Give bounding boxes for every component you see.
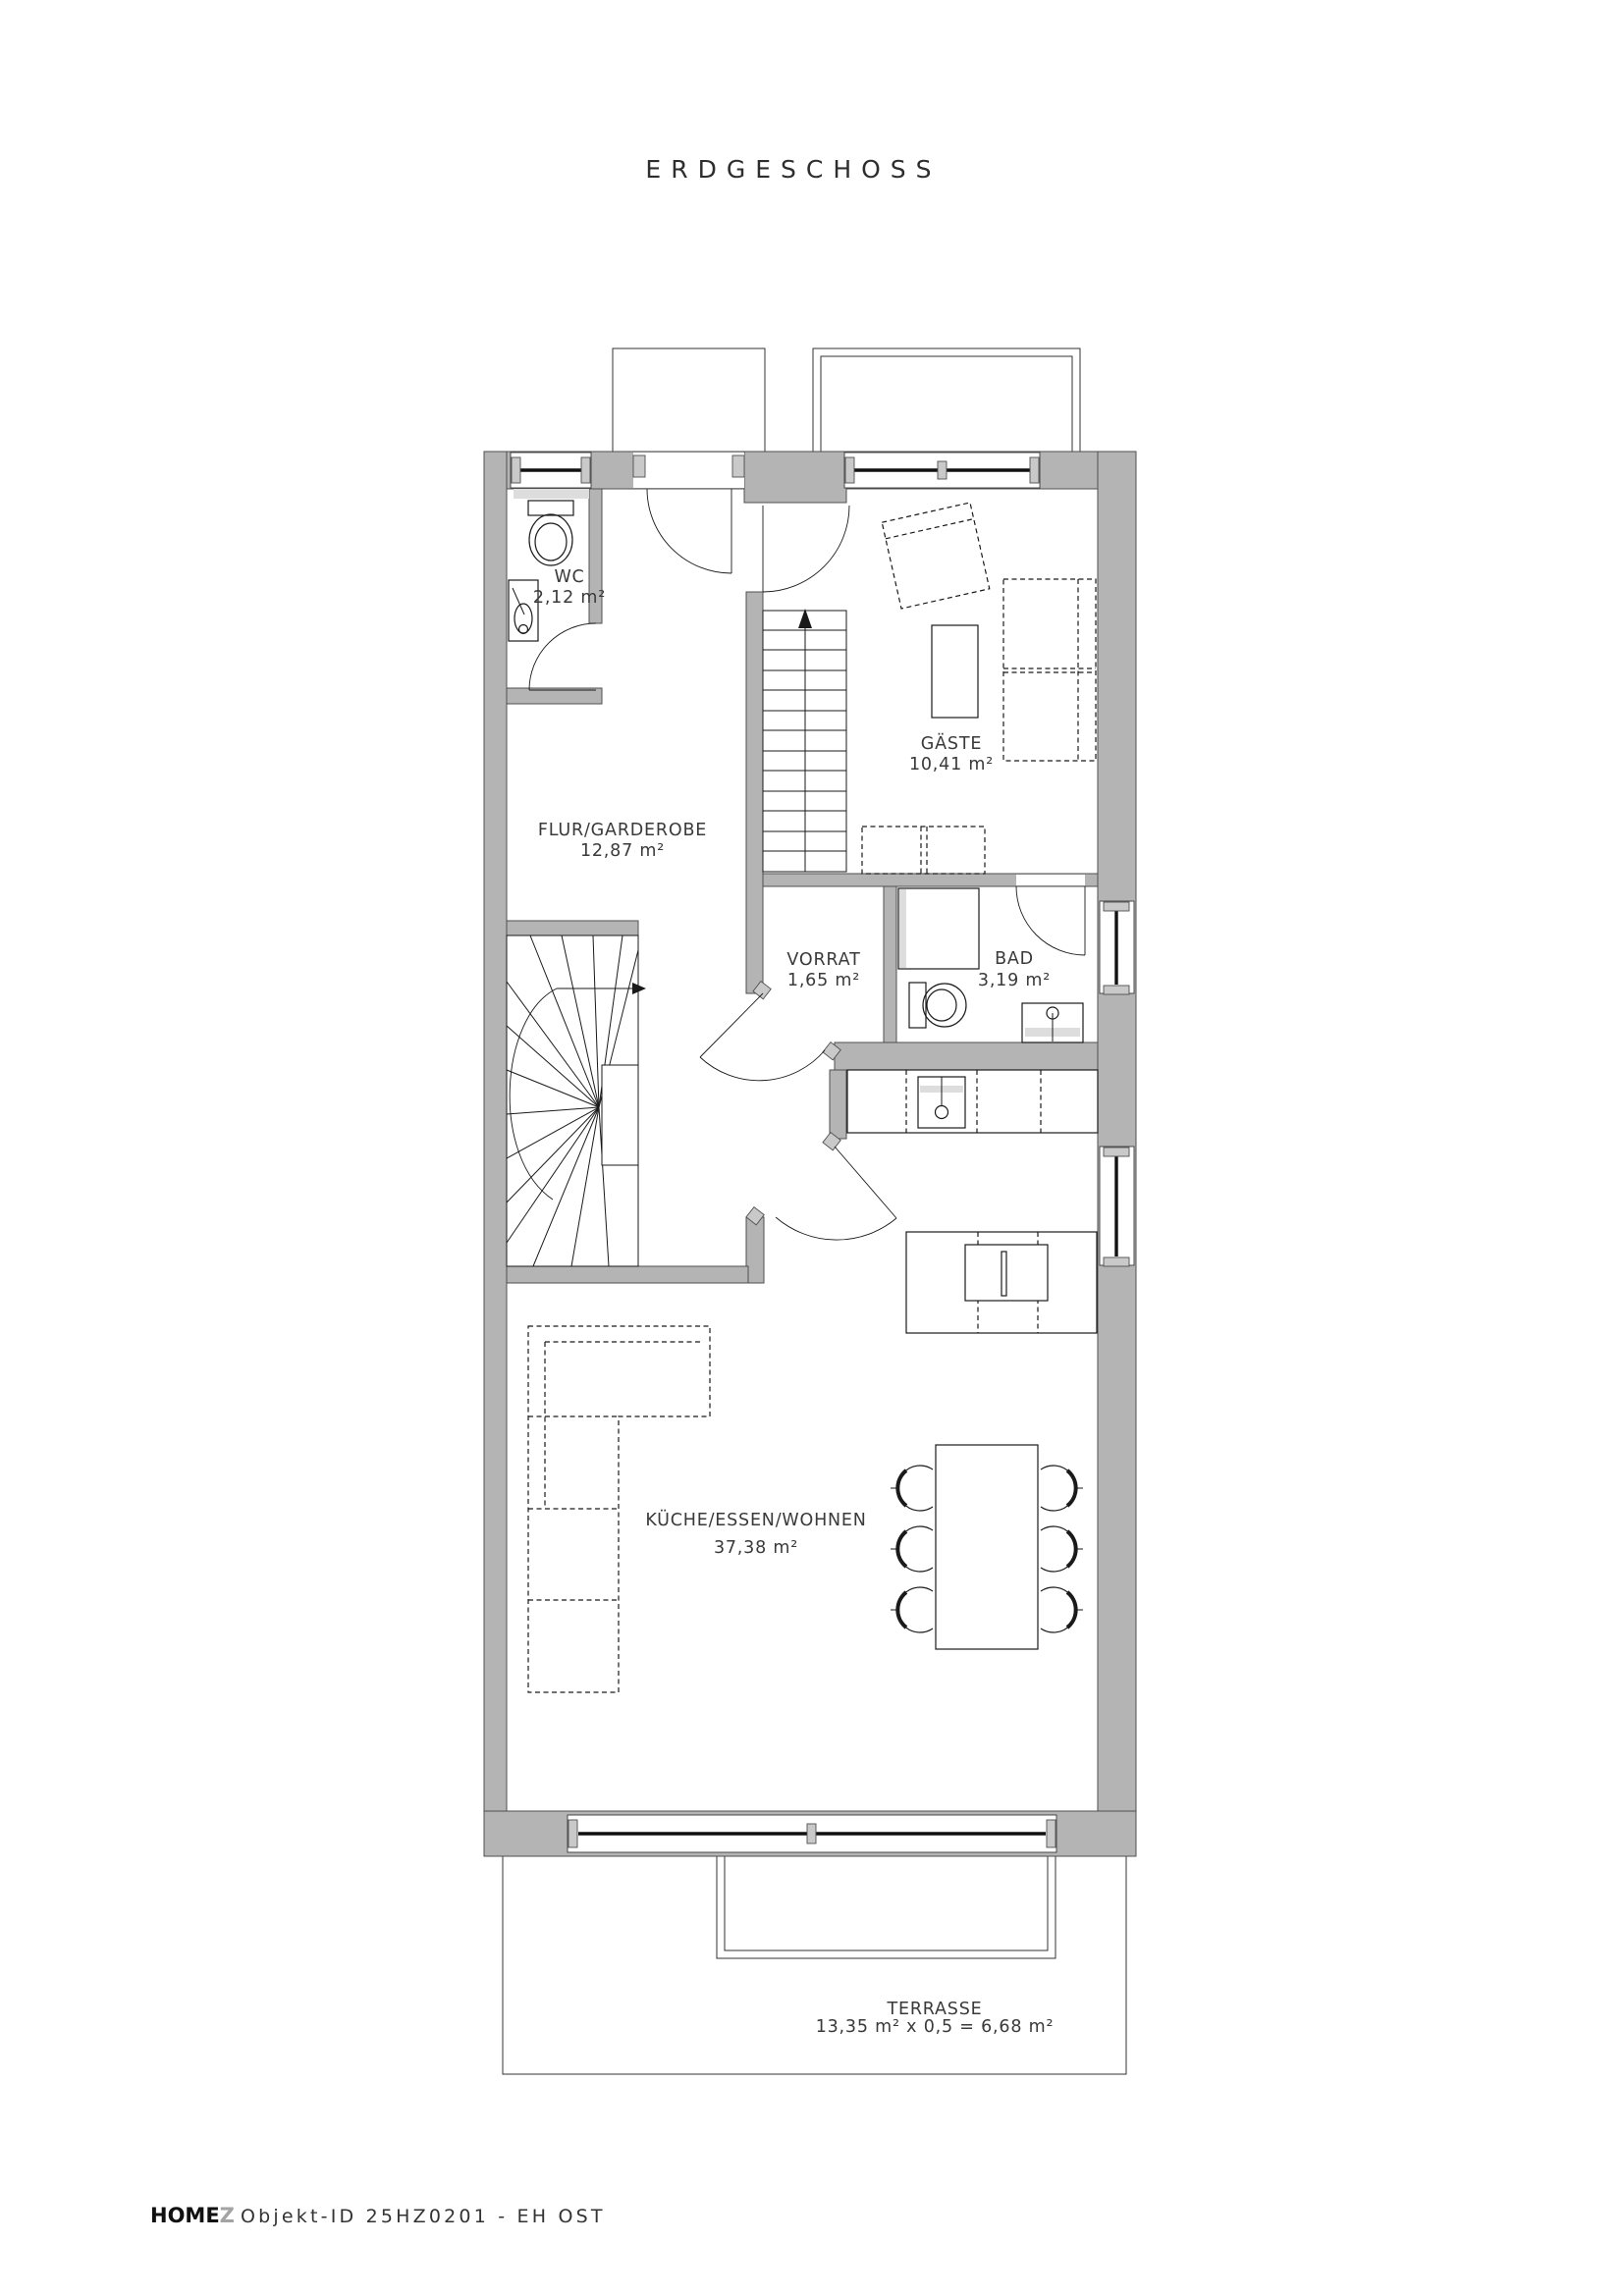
toilet-icon xyxy=(528,501,573,565)
toilet-icon xyxy=(909,983,966,1028)
light-shaft-outline-inner xyxy=(821,356,1072,453)
gaeste-furniture xyxy=(862,503,1096,874)
bad-fixtures xyxy=(898,888,1083,1042)
room-label-terrasse: TERRASSE xyxy=(886,2000,982,2019)
wardrobe-icon xyxy=(1003,579,1096,761)
sofa-icon xyxy=(528,1326,710,1692)
page-title: ERDGESCHOSS xyxy=(645,155,941,184)
porch-outlines xyxy=(613,348,1080,453)
vorrat-door-arc xyxy=(700,1050,825,1081)
kitchen-door-leaf xyxy=(835,1147,896,1218)
chair-icon xyxy=(891,1466,933,1511)
wall-hall-kitchen xyxy=(746,1217,764,1283)
entry-jamb-left xyxy=(633,455,645,477)
chair-icon xyxy=(891,1587,933,1632)
kitchen-door-arc xyxy=(776,1217,896,1240)
sink-icon xyxy=(1022,1003,1083,1042)
kitchen-units xyxy=(847,1070,1098,1333)
terrace-inner-outline-inner xyxy=(725,1856,1048,1950)
room-label-bad: BAD xyxy=(995,949,1034,969)
room-area-terrasse: 13,35 m² x 0,5 = 6,68 m² xyxy=(816,2017,1055,2037)
wall-hall-stair xyxy=(746,592,763,993)
desk-icon xyxy=(932,625,978,718)
stairs-up-arrow xyxy=(798,609,812,628)
wall-kitchen-west xyxy=(830,1070,846,1139)
wc-door-arc xyxy=(529,623,596,690)
chair-icon xyxy=(1041,1526,1083,1572)
terrace-outline xyxy=(503,1856,1126,2074)
entry-jamb-right xyxy=(732,455,744,477)
dining-set xyxy=(891,1445,1083,1649)
object-id: Objekt-ID 25HZ0201 - EH OST xyxy=(241,2206,606,2227)
floorplan-page: ERDGESCHOSS xyxy=(0,0,1624,2296)
room-area-bad: 3,19 m² xyxy=(978,971,1051,990)
shower-icon xyxy=(898,888,979,969)
room-label-vorrat: VORRAT xyxy=(786,950,860,970)
entry-door-opening xyxy=(633,453,744,488)
wall-stair-bottom xyxy=(507,1266,748,1283)
wall-vorrat-bad xyxy=(884,886,896,1042)
room-area-flur: 12,87 m² xyxy=(580,841,665,861)
room-area-gaeste: 10,41 m² xyxy=(909,755,994,774)
chair-icon xyxy=(891,1526,933,1572)
chair-icon xyxy=(1041,1466,1083,1511)
kitchen-island-icon xyxy=(906,1232,1097,1333)
room-label-wc: WC xyxy=(554,567,584,587)
terrace-inner-outline-outer xyxy=(717,1856,1056,1958)
light-shaft-outline-outer xyxy=(813,348,1080,453)
stairs-up-icon xyxy=(763,609,846,872)
bad-door-arc xyxy=(1016,886,1085,955)
room-area-vorrat: 1,65 m² xyxy=(787,971,860,990)
bed-icon xyxy=(882,503,990,609)
footer: HOMEZ Objekt-ID 25HZ0201 - EH OST xyxy=(150,2204,606,2227)
bad-door-opening xyxy=(1016,875,1085,885)
kitchen-counter-icon xyxy=(847,1070,1098,1133)
room-area-wc: 2,12 m² xyxy=(533,588,606,608)
vorrat-door-leaf xyxy=(700,993,763,1057)
terrace xyxy=(503,1856,1126,2074)
room-label-gaeste: GÄSTE xyxy=(921,733,982,754)
wall-stair-top xyxy=(507,921,638,935)
brand-logo: HOMEZ xyxy=(150,2204,235,2227)
winder-stairs-icon xyxy=(507,935,646,1266)
entry-porch-outline xyxy=(613,348,765,453)
dresser-icon xyxy=(862,827,985,874)
wall-left xyxy=(484,452,507,1856)
room-area-kueche: 37,38 m² xyxy=(714,1538,798,1558)
chair-icon xyxy=(1041,1587,1083,1632)
floorplan-drawing: ERDGESCHOSS xyxy=(0,0,1624,2296)
dining-table-icon xyxy=(936,1445,1038,1649)
wall-entry-pier xyxy=(744,452,846,503)
entry-door-arc xyxy=(647,489,731,573)
room-label-flur: FLUR/GARDEROBE xyxy=(538,821,707,840)
wall-kitchen-top xyxy=(835,1042,1098,1070)
room-label-kueche: KÜCHE/ESSEN/WOHNEN xyxy=(645,1509,866,1530)
wc-sill xyxy=(514,489,589,499)
gaeste-door-arc xyxy=(763,506,849,592)
winder-stairs-arrow xyxy=(632,983,646,994)
